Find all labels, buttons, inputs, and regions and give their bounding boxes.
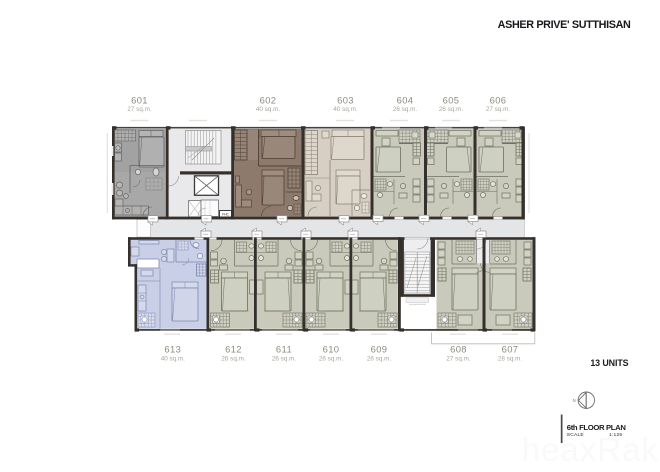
svg-text:606: 606	[490, 95, 507, 106]
svg-text:27 sq.m.: 27 sq.m.	[127, 106, 151, 113]
svg-text:heaxRaka: heaxRaka	[522, 431, 660, 467]
svg-text:601: 601	[131, 95, 148, 106]
svg-text:26 sq.m.: 26 sq.m.	[393, 106, 417, 113]
svg-text:40 sq.m.: 40 sq.m.	[161, 356, 185, 363]
svg-text:26 sq.m.: 26 sq.m.	[367, 356, 391, 363]
svg-text:40 sq.m.: 40 sq.m.	[333, 106, 357, 113]
svg-text:26 sq.m.: 26 sq.m.	[319, 356, 343, 363]
svg-text:1:125: 1:125	[609, 432, 622, 438]
svg-text:N: N	[573, 398, 576, 403]
svg-text:609: 609	[371, 343, 388, 354]
svg-text:26 sq.m.: 26 sq.m.	[272, 356, 296, 363]
svg-text:612: 612	[225, 343, 242, 354]
svg-text:FHC: FHC	[222, 213, 230, 217]
svg-text:27 sq.m.: 27 sq.m.	[446, 356, 470, 363]
svg-text:611: 611	[276, 343, 292, 354]
svg-text:607: 607	[502, 343, 519, 354]
svg-text:610: 610	[323, 343, 340, 354]
svg-text:40 sq.m.: 40 sq.m.	[256, 106, 280, 113]
svg-text:604: 604	[397, 95, 414, 106]
svg-text:27 sq.m.: 27 sq.m.	[486, 106, 510, 113]
svg-text:602: 602	[260, 95, 277, 106]
svg-text:ASHER PRIVE' SUTTHISAN: ASHER PRIVE' SUTTHISAN	[498, 19, 631, 31]
svg-text:SCALE: SCALE	[567, 432, 585, 438]
svg-text:6th FLOOR PLAN: 6th FLOOR PLAN	[567, 423, 627, 432]
svg-text:613: 613	[164, 343, 181, 354]
svg-text:605: 605	[443, 95, 460, 106]
svg-text:13 UNITS: 13 UNITS	[590, 358, 628, 368]
svg-text:608: 608	[450, 343, 467, 354]
svg-text:28 sq.m.: 28 sq.m.	[498, 356, 522, 363]
svg-text:603: 603	[337, 95, 354, 106]
svg-text:26 sq.m.: 26 sq.m.	[439, 106, 463, 113]
svg-text:26 sq.m.: 26 sq.m.	[221, 356, 245, 363]
